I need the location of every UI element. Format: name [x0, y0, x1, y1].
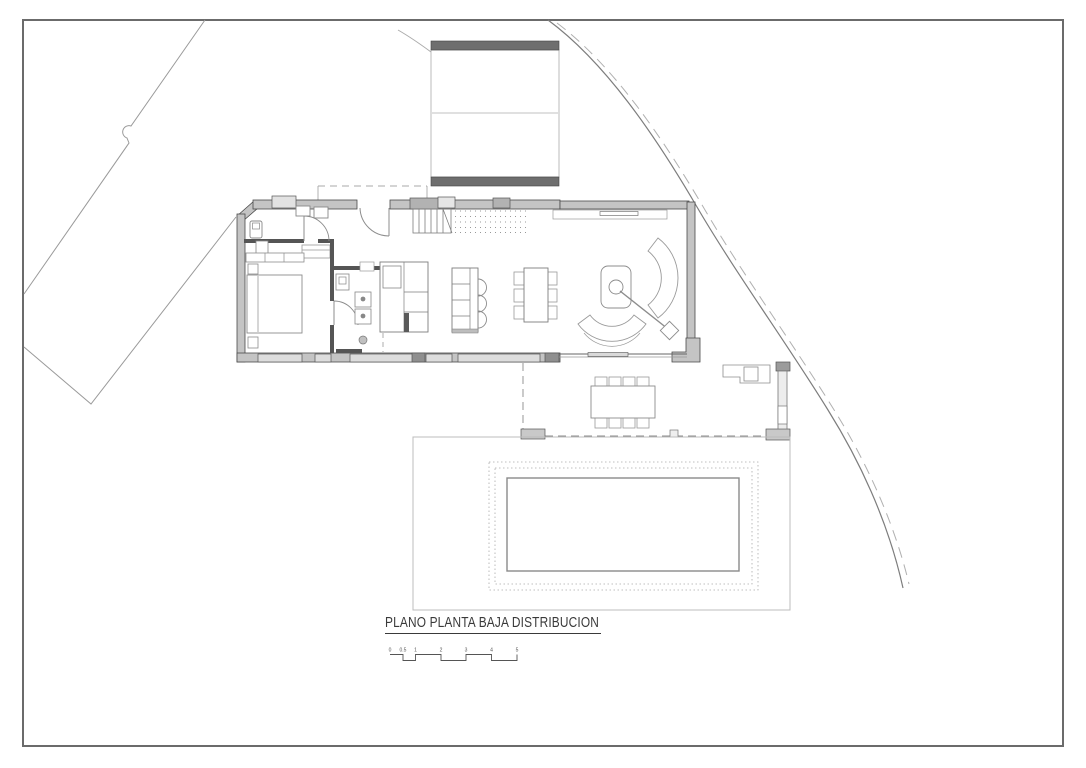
floor-plan-canvas: PLANO PLANTA BAJA DISTRIBUCION 0 0.5 1 2…	[0, 0, 1086, 768]
pergola-pier-se	[766, 429, 790, 440]
terrace-wall-window	[778, 406, 787, 424]
boundary-line-nw	[24, 20, 205, 294]
kitchen-niche	[360, 262, 374, 271]
curved-sofa-east	[648, 238, 678, 318]
hall-closet	[302, 245, 330, 258]
scale-bar-line	[390, 655, 517, 661]
driveway-curve	[398, 30, 431, 52]
bathroom	[244, 206, 332, 257]
living-room	[578, 238, 679, 346]
fridge	[383, 266, 401, 288]
shower-tray	[314, 207, 328, 218]
floor-drain	[359, 336, 367, 344]
bbq-grill	[744, 367, 758, 381]
arc-lamp-base	[660, 321, 678, 339]
bed	[247, 275, 302, 333]
sink-drain-1	[361, 297, 366, 302]
drawing-sheet: PLANO PLANTA BAJA DISTRIBUCION 0 0.5 1 2…	[0, 0, 1086, 768]
wall-east	[687, 202, 695, 358]
entry-door	[360, 208, 389, 236]
mullion-pier-2	[545, 353, 559, 362]
sink-drain-2	[361, 314, 366, 319]
scale-tick-label: 0.5	[400, 648, 407, 654]
oven-front	[404, 313, 409, 332]
window-south-5	[458, 354, 540, 362]
scale-tick-label: 5	[516, 648, 519, 654]
toilet-tank	[253, 223, 260, 229]
window-south-4	[426, 354, 452, 362]
bedroom-wall-lower	[330, 325, 334, 353]
kitchen-wall-1	[334, 266, 360, 270]
scale-bar: 0 0.5 1 2 3 4 5	[389, 648, 519, 661]
dining-table	[524, 268, 548, 322]
window-south-2	[315, 354, 331, 362]
kitchen-island	[452, 268, 487, 333]
scale-tick-label: 0	[389, 648, 392, 654]
island-kick	[452, 329, 478, 333]
scale-tick-label: 3	[465, 648, 468, 654]
staircase	[413, 209, 452, 233]
sliding-door-leaf	[588, 353, 628, 357]
closet-outline	[302, 245, 330, 258]
wall-top-living	[560, 201, 689, 209]
bedroom	[246, 239, 358, 353]
kitchen-low-wall	[336, 349, 362, 353]
swimming-pool	[507, 478, 739, 571]
window-stair-1	[410, 198, 440, 209]
stair-void-hatch	[455, 211, 530, 233]
stool-1	[478, 279, 487, 296]
window-bedroom-south	[258, 354, 302, 362]
bath-partition-wall	[244, 239, 304, 243]
garage	[398, 30, 559, 186]
stool-3	[478, 311, 487, 328]
north-window-vent	[600, 212, 638, 216]
window-south-3	[350, 354, 420, 362]
pool-zone	[413, 437, 790, 610]
terrace	[521, 362, 790, 440]
window-top-3	[493, 198, 510, 208]
patio-table	[591, 386, 655, 418]
entry-door-swing	[360, 208, 389, 236]
bedroom-door-swing	[334, 301, 358, 325]
scale-tick-label: 2	[440, 648, 443, 654]
boundary-line-sw	[24, 217, 236, 404]
bath-wall-stub	[318, 239, 332, 243]
scale-tick-label: 4	[490, 648, 493, 654]
garage-wall-top	[431, 41, 559, 50]
title-block: PLANO PLANTA BAJA DISTRIBUCION	[385, 614, 601, 634]
site-boundary-left	[24, 20, 236, 404]
wall-pier-se	[672, 338, 700, 362]
page-title: PLANO PLANTA BAJA DISTRIBUCION	[385, 614, 599, 631]
scale-tick-label: 1	[414, 648, 417, 654]
kitchen	[334, 262, 428, 353]
pergola-post	[670, 430, 678, 437]
wardrobe	[246, 253, 304, 262]
nightstand-1	[248, 264, 258, 274]
dining-area	[514, 268, 557, 322]
stool-2	[478, 295, 487, 312]
mullion-pier-1	[412, 353, 425, 362]
nightstand-2	[248, 337, 258, 348]
garage-wall-bottom	[431, 177, 559, 186]
wall-west	[237, 214, 245, 362]
window-bath	[272, 196, 296, 208]
bath-door-swing	[304, 216, 329, 241]
bedroom-wall-upper	[330, 239, 334, 301]
pergola-pier-ne	[776, 362, 790, 371]
window-stair-2	[438, 197, 455, 208]
sink	[296, 206, 310, 216]
